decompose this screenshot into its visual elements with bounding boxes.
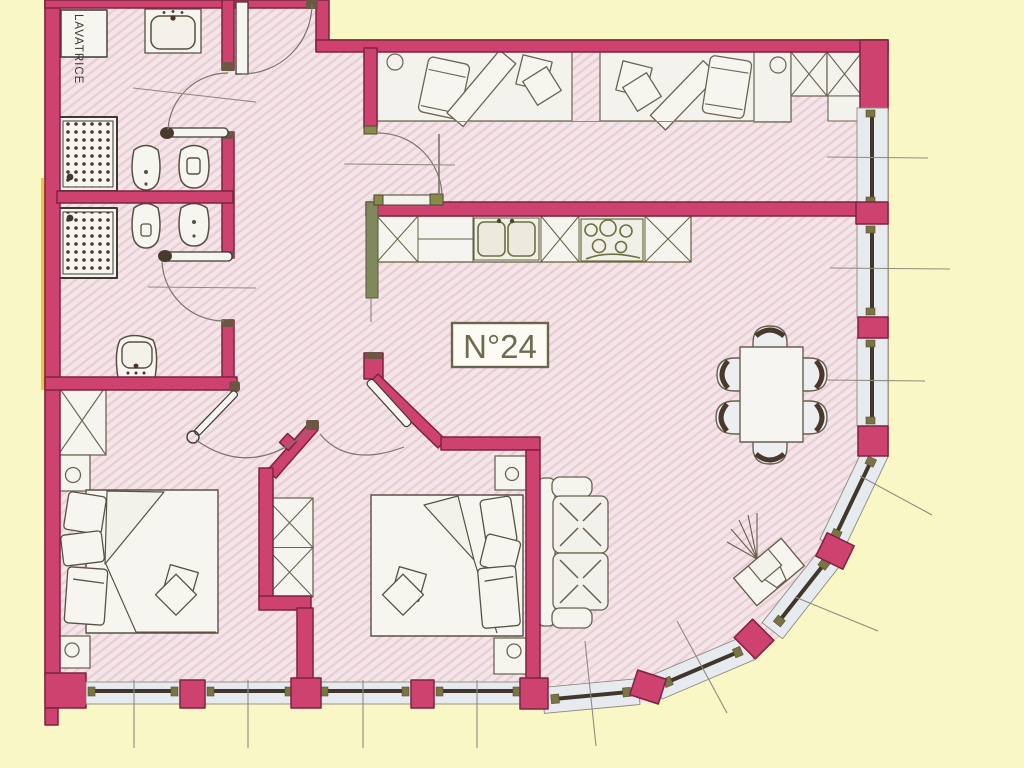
svg-text:LAVATRICE: LAVATRICE bbox=[72, 14, 84, 84]
svg-text:N°24: N°24 bbox=[463, 328, 537, 365]
